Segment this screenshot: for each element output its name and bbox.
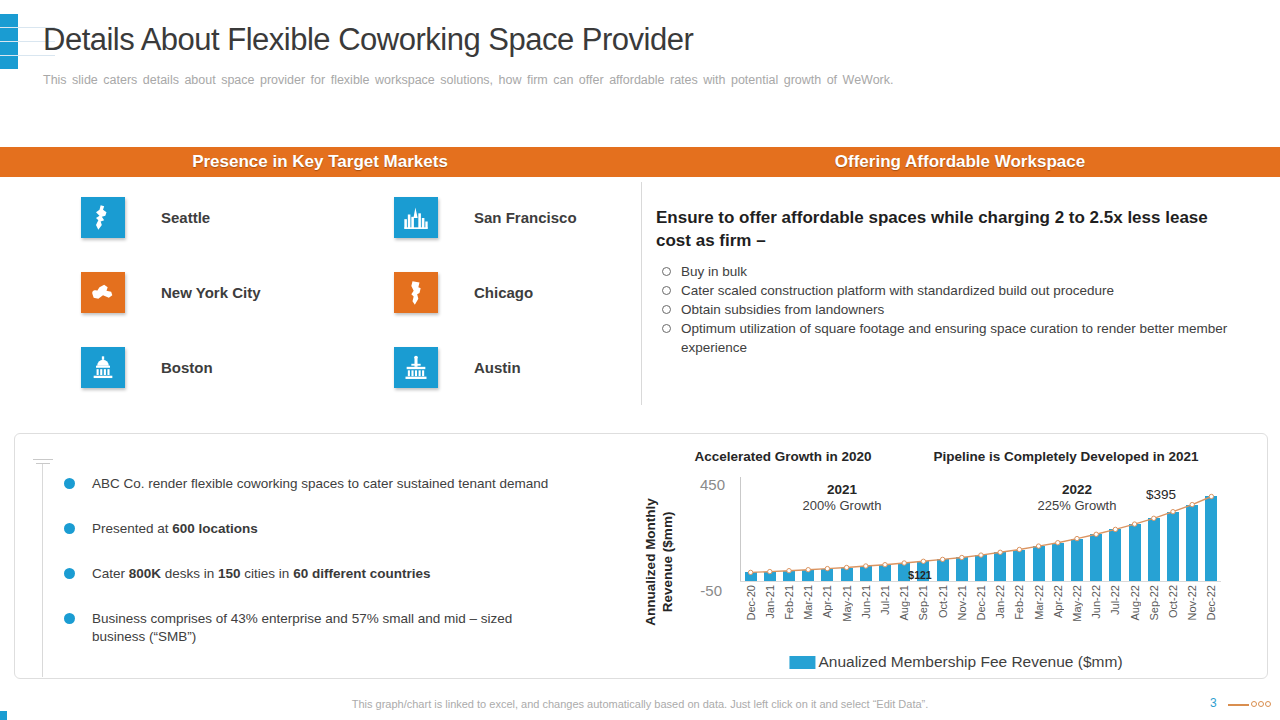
data-label-395: $395: [1146, 487, 1176, 502]
circle-bullet-icon: [662, 324, 671, 333]
city-label: Austin: [474, 359, 521, 376]
highlight-text: Cater 800K desks in 150 cities in 60 dif…: [92, 565, 430, 583]
dot-bullet-icon: [64, 478, 75, 489]
dot-bullet-icon: [64, 568, 75, 579]
workspace-bullet: Buy in bulk: [660, 262, 1245, 281]
chicago-map-icon: [394, 272, 438, 313]
new-york-map-icon: [81, 272, 125, 313]
footer-decoration-circle: [1265, 701, 1271, 707]
city-item-seattle: Seattle: [81, 197, 210, 238]
boston-building-icon: [81, 347, 125, 388]
city-label: Seattle: [161, 209, 210, 226]
header-affordable-workspace: Offering Affordable Workspace: [640, 147, 1280, 177]
highlight-text: Presented at 600 locations: [92, 520, 258, 538]
x-label-Apr-22: Apr-22: [1050, 585, 1066, 639]
x-label-Jul-22: Jul-22: [1107, 585, 1123, 639]
footer-decoration-line: [1228, 704, 1249, 706]
highlight-item: ABC Co. render flexible coworking spaces…: [64, 475, 564, 493]
legend-label: Anualized Membership Fee Revenue ($mm): [818, 653, 1122, 671]
x-label-Oct-22: Oct-22: [1165, 585, 1181, 639]
x-label-Jan-21: Jan-21: [762, 585, 778, 639]
highlight-bullet-list: ABC Co. render flexible coworking spaces…: [64, 475, 564, 646]
highlight-text: Business comprises of 43% enterprise and…: [92, 610, 564, 646]
y-axis-title: Annualized Monthly Revenue ($mm): [643, 477, 677, 647]
data-label-121: $121: [908, 569, 931, 581]
highlight-item: Business comprises of 43% enterprise and…: [64, 610, 564, 646]
corner-accent: [0, 711, 7, 720]
x-label-Sep-22: Sep-22: [1146, 585, 1162, 639]
city-label: Boston: [161, 359, 213, 376]
x-label-May-22: May-22: [1069, 585, 1085, 639]
chart-title-right: Pipeline is Completely Developed in 2021: [934, 449, 1199, 464]
chart-legend: Anualized Membership Fee Revenue ($mm): [789, 653, 1122, 671]
highlight-text: ABC Co. render flexible coworking spaces…: [92, 475, 548, 493]
footer-note: This graph/chart is linked to excel, and…: [352, 698, 929, 710]
x-axis-line: [740, 581, 1221, 582]
page-subtitle: This slide caters details about space pr…: [43, 73, 894, 87]
circle-bullet-icon: [662, 286, 671, 295]
decorative-line: [33, 459, 53, 460]
x-axis-labels: Dec-20Jan-21Feb-21Mar-21Apr-21May-21Jun-…: [741, 585, 1221, 643]
x-label-Nov-21: Nov-21: [954, 585, 970, 639]
x-label-Dec-20: Dec-20: [743, 585, 759, 639]
workspace-bullet-list: Buy in bulkCater scaled construction pla…: [660, 262, 1245, 357]
x-label-Aug-21: Aug-21: [896, 585, 912, 639]
page-title: Details About Flexible Coworking Space P…: [43, 22, 693, 58]
slide: Details About Flexible Coworking Space P…: [0, 0, 1280, 720]
panel-divider: [641, 182, 642, 405]
x-label-Mar-22: Mar-22: [1031, 585, 1047, 639]
chart-title-left: Accelerated Growth in 2020: [694, 449, 871, 464]
x-label-Aug-22: Aug-22: [1127, 585, 1143, 639]
x-label-Jan-22: Jan-22: [992, 585, 1008, 639]
workspace-heading: Ensure to offer affordable spaces while …: [656, 207, 1236, 253]
workspace-bullet-text: Cater scaled construction platform with …: [681, 281, 1114, 300]
city-item-chicago: Chicago: [394, 272, 533, 313]
x-label-Feb-22: Feb-22: [1011, 585, 1027, 639]
austin-capitol-icon: [394, 347, 438, 388]
annotation-2022: 2022 225% Growth: [1038, 481, 1117, 514]
seattle-map-icon: [81, 197, 125, 238]
workspace-bullet-text: Buy in bulk: [681, 262, 747, 281]
section-header-band: Presence in Key Target Markets Offering …: [0, 147, 1280, 177]
city-label: San Francisco: [474, 209, 577, 226]
x-label-Jul-21: Jul-21: [877, 585, 893, 639]
circle-bullet-icon: [662, 305, 671, 314]
dot-bullet-icon: [64, 523, 75, 534]
city-label: Chicago: [474, 284, 533, 301]
footer-decoration-circle: [1251, 701, 1257, 707]
highlight-item: Cater 800K desks in 150 cities in 60 dif…: [64, 565, 564, 583]
workspace-bullet-text: Optimum utilization of square footage an…: [681, 319, 1245, 357]
y-tick-minus-50: -50: [684, 582, 722, 599]
x-label-Jun-22: Jun-22: [1088, 585, 1104, 639]
city-item-new-york-city: New York City: [81, 272, 260, 313]
x-label-Feb-21: Feb-21: [781, 585, 797, 639]
decorative-line: [36, 463, 50, 464]
x-label-Jun-21: Jun-21: [858, 585, 874, 639]
workspace-bullet: Optimum utilization of square footage an…: [660, 319, 1245, 357]
city-item-austin: Austin: [394, 347, 521, 388]
san-francisco-skyline-icon: [394, 197, 438, 238]
header-presence-markets: Presence in Key Target Markets: [0, 147, 640, 177]
city-label: New York City: [161, 284, 260, 301]
x-label-Apr-21: Apr-21: [819, 585, 835, 639]
dot-bullet-icon: [64, 613, 75, 624]
x-label-Sep-21: Sep-21: [915, 585, 931, 639]
workspace-bullet-text: Obtain subsidies from landowners: [681, 300, 884, 319]
x-label-Dec-21: Dec-21: [973, 585, 989, 639]
x-label-May-21: May-21: [839, 585, 855, 639]
x-label-Dec-22: Dec-22: [1203, 585, 1219, 639]
footer-decoration-circle: [1258, 701, 1264, 707]
workspace-bullet: Cater scaled construction platform with …: [660, 281, 1245, 300]
annotation-2021: 2021 200% Growth: [803, 481, 882, 514]
city-item-boston: Boston: [81, 347, 213, 388]
y-tick-450: 450: [687, 476, 725, 493]
x-label-Oct-21: Oct-21: [935, 585, 951, 639]
city-item-san-francisco: San Francisco: [394, 197, 577, 238]
page-number: 3: [1210, 696, 1217, 710]
x-label-Nov-22: Nov-22: [1184, 585, 1200, 639]
x-label-Mar-21: Mar-21: [800, 585, 816, 639]
circle-bullet-icon: [662, 267, 671, 276]
legend-swatch: [789, 656, 815, 669]
highlight-item: Presented at 600 locations: [64, 520, 564, 538]
decorative-vertical-line: [42, 464, 43, 677]
workspace-bullet: Obtain subsidies from landowners: [660, 300, 1245, 319]
